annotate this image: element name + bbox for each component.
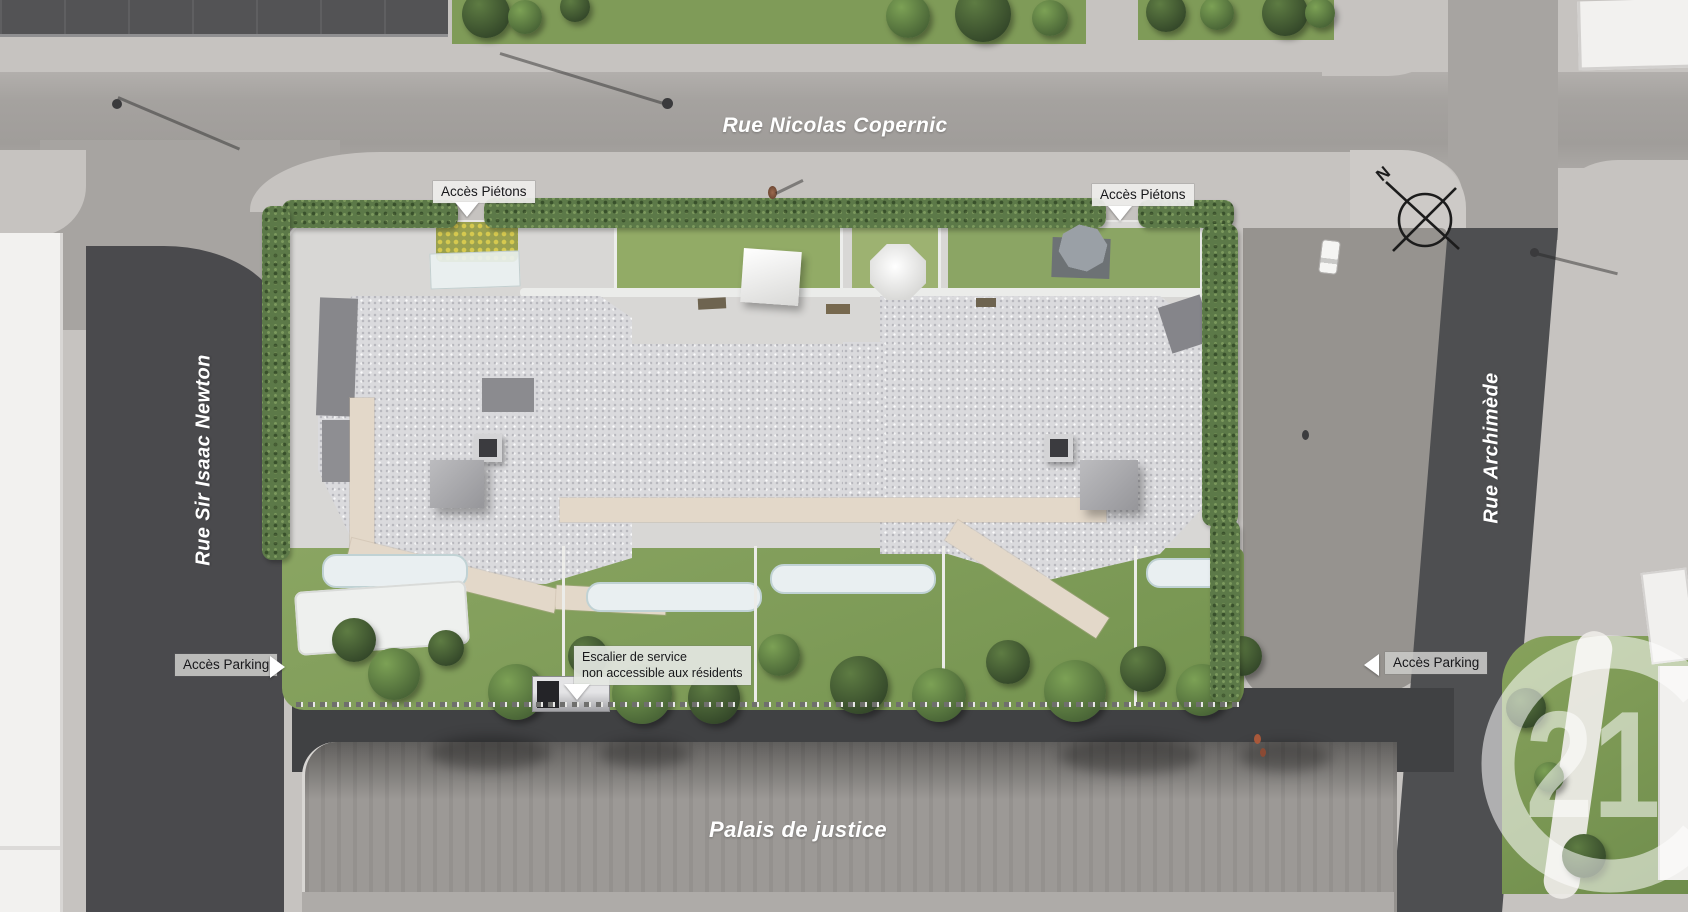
pavement-corner-intersection-se xyxy=(1558,160,1688,244)
tree xyxy=(986,640,1030,684)
balcony-glass xyxy=(586,582,762,612)
service-stair-note-line1: Escalier de service xyxy=(582,649,743,665)
tree-shadow xyxy=(1060,738,1200,774)
century21-watermark: 21 xyxy=(1478,628,1688,912)
skylight xyxy=(474,434,502,462)
hedge-west xyxy=(262,206,290,560)
tree xyxy=(508,0,542,34)
roof-shaded-section xyxy=(482,378,534,412)
tree-shadow xyxy=(600,740,690,768)
glass-canopy xyxy=(429,250,520,289)
roof-shaded-section xyxy=(322,420,352,482)
service-stair-note-line2: non accessible aux résidents xyxy=(582,665,743,681)
tree xyxy=(912,668,966,722)
road-left-dark xyxy=(86,246,284,912)
north-label: N xyxy=(1372,163,1394,185)
roof-walkway xyxy=(350,398,374,550)
hedge-east xyxy=(1202,224,1238,526)
pedestrian xyxy=(1254,734,1261,744)
roof-walk-line xyxy=(520,288,1210,297)
hedge-east xyxy=(1210,520,1240,702)
plaza-bottom-strip xyxy=(302,892,1394,912)
landmark-label-palais: Palais de justice xyxy=(709,817,887,843)
arrow-down-icon xyxy=(455,202,479,217)
pavement-corner-intersection-nw xyxy=(1322,0,1448,76)
arrow-left-icon xyxy=(1364,654,1379,676)
pedestrian xyxy=(1302,430,1309,440)
tree xyxy=(1120,646,1166,692)
pedestrian-access-label-right: Accès Piétons xyxy=(1092,184,1194,206)
garden-fence xyxy=(754,546,757,706)
bench xyxy=(698,297,727,309)
roof-walkway xyxy=(560,498,1106,522)
parking-access-label-left: Accès Parking xyxy=(175,654,277,676)
arrow-down-icon xyxy=(564,684,590,700)
tree xyxy=(1032,0,1068,36)
tree-shadow xyxy=(430,736,550,770)
site-fence-south xyxy=(296,702,1242,707)
pedestrian-access-label-left: Accès Piétons xyxy=(433,181,535,203)
bench xyxy=(826,304,850,314)
streetlight xyxy=(112,99,122,109)
parking-access-label-right: Accès Parking xyxy=(1385,652,1487,674)
building-white-left-roofline xyxy=(0,846,60,850)
balcony-glass xyxy=(770,564,936,594)
skylight xyxy=(1045,434,1073,462)
hedge-north xyxy=(282,200,458,228)
terrace-lawn xyxy=(616,228,840,294)
building-white-topright xyxy=(1577,0,1688,70)
terrace-divider xyxy=(938,226,941,294)
street-name-top: Rue Nicolas Copernic xyxy=(722,114,947,138)
bench xyxy=(976,298,996,307)
building-roof-topleft xyxy=(0,0,448,37)
street-name-left: Rue Sir Isaac Newton xyxy=(193,354,216,565)
roof-equipment-box xyxy=(430,460,484,508)
streetlight xyxy=(662,98,673,109)
tree xyxy=(758,634,800,676)
parasol-octagon xyxy=(870,244,926,300)
tree xyxy=(1044,660,1106,722)
compass-icon: N xyxy=(1358,152,1468,264)
terrace-divider xyxy=(840,226,843,294)
parasol-square xyxy=(740,248,802,306)
roof-gravel-connector xyxy=(843,342,883,500)
roof-equipment-box xyxy=(1080,460,1138,510)
arrow-down-icon xyxy=(1108,206,1132,221)
tree-shadow xyxy=(1240,742,1330,772)
pedestrian xyxy=(1260,748,1266,757)
tree xyxy=(332,618,376,662)
tree xyxy=(368,648,420,700)
hedge-north xyxy=(484,198,1106,228)
tree xyxy=(428,630,464,666)
streetlight xyxy=(1530,248,1539,257)
building-white-left xyxy=(0,233,63,912)
watermark-number: 21 xyxy=(1526,680,1661,850)
site-plan: Rue Nicolas Copernic Rue Sir Isaac Newto… xyxy=(0,0,1688,912)
roof-gravel-east-wing xyxy=(878,292,1208,584)
arrow-right-icon xyxy=(270,656,285,678)
terrace-divider xyxy=(614,226,617,294)
street-name-right: Rue Archimède xyxy=(1481,372,1504,523)
service-stair-note: Escalier de service non accessible aux r… xyxy=(574,646,751,685)
